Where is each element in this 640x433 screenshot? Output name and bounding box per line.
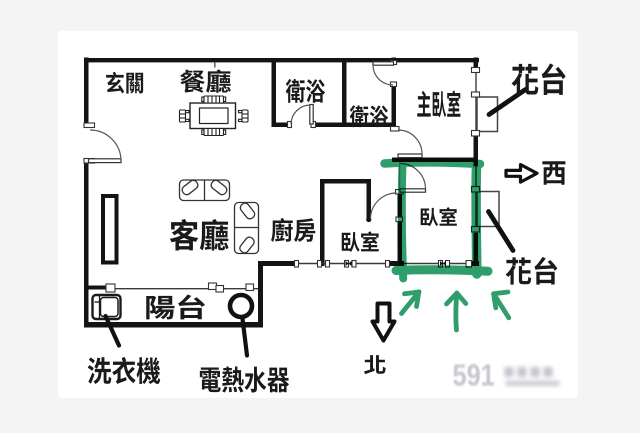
- svg-text:591: 591: [453, 358, 495, 392]
